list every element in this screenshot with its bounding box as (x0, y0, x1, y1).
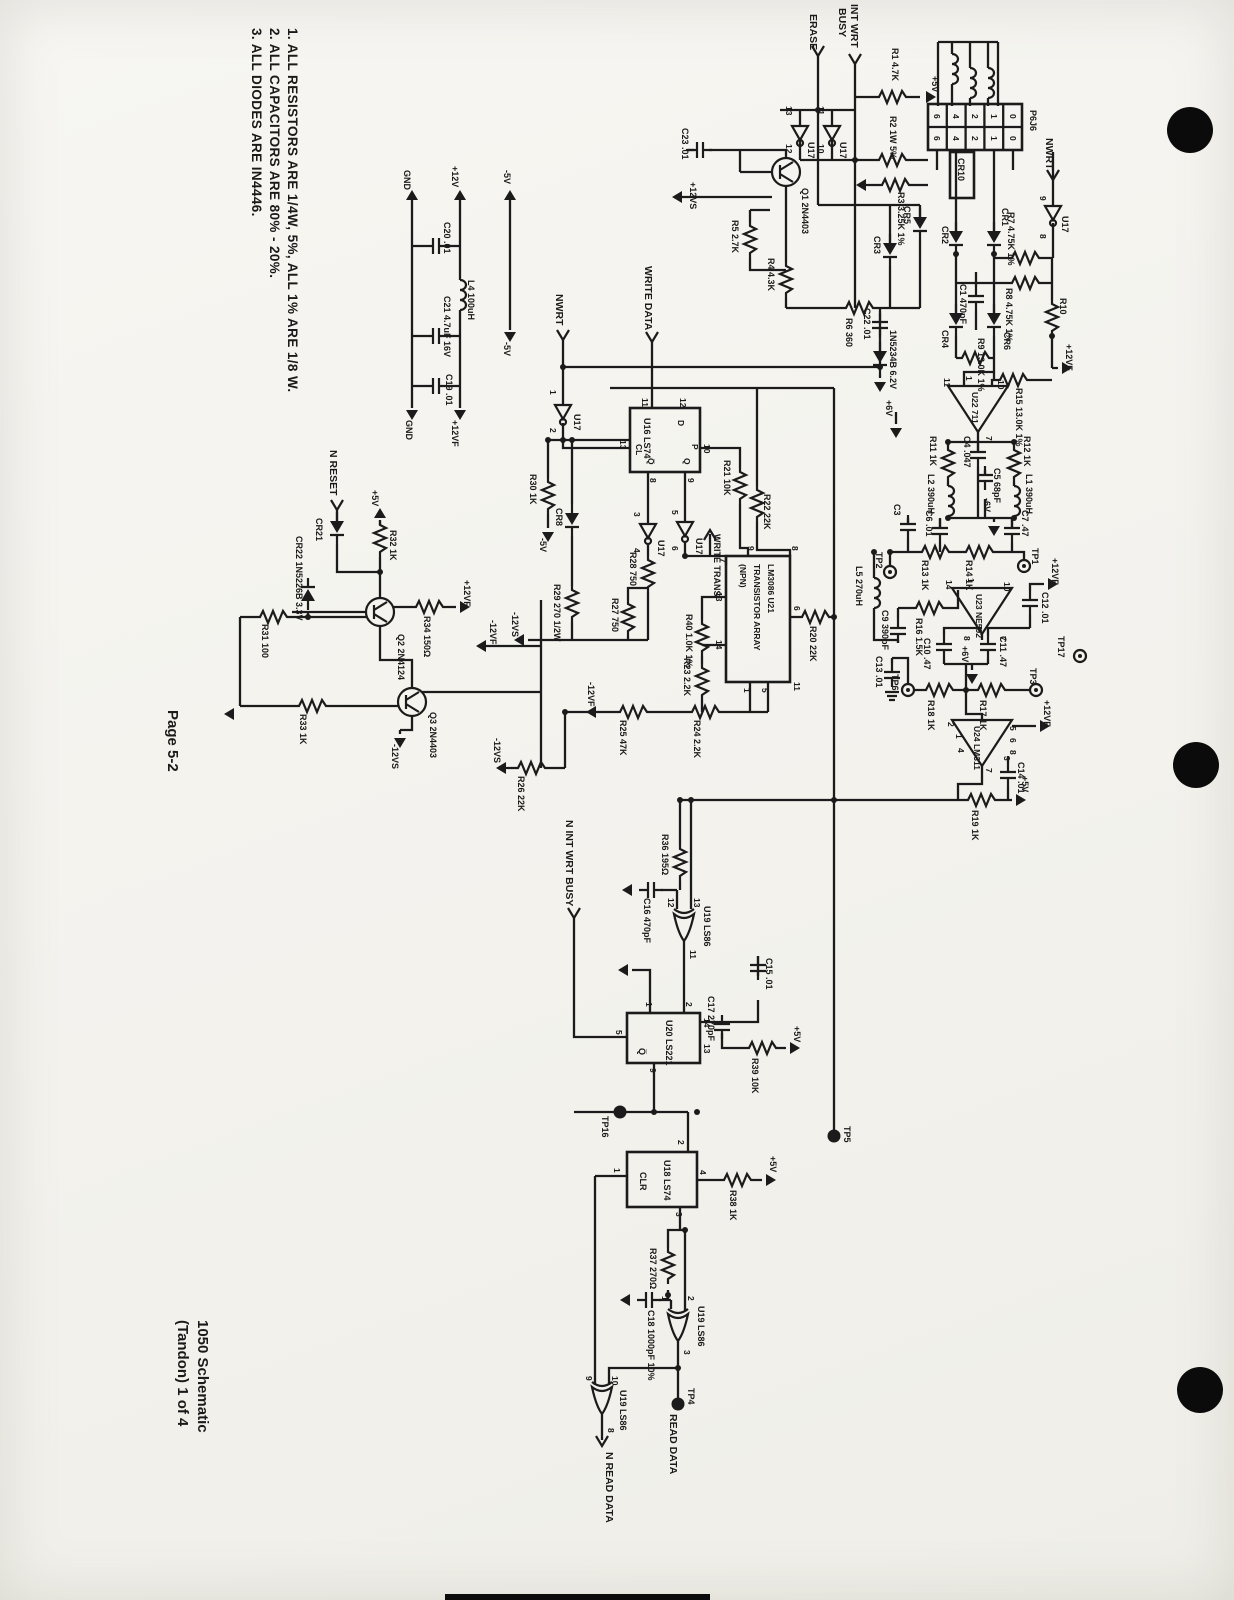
label-c19: C19 .01 (444, 374, 454, 406)
capacitor-c3 (900, 515, 916, 539)
resistor-r39 (745, 1042, 781, 1054)
rail-p5v-r38: +5V (768, 1156, 778, 1172)
svg-text:13: 13 (692, 898, 702, 908)
rail-m5v-r30: -5V (538, 538, 548, 552)
capacitor-c14 (1000, 763, 1016, 787)
rail-m5v-mid: -5V (502, 342, 512, 356)
label-r6: R6 360 (844, 318, 854, 347)
label-u21-line2: TRANSISTOR ARRAY (752, 564, 762, 651)
signal-nwrt-right: NWRT (1043, 138, 1055, 170)
svg-text:6: 6 (670, 546, 680, 551)
gnd-arrow-bottom (406, 410, 418, 420)
scanned-schematic-page: 3. ALL DIODES ARE IN4446. 2. ALL CAPACIT… (0, 0, 1234, 1600)
testpoint-tp3 (1030, 684, 1042, 696)
svg-text:11: 11 (816, 106, 826, 115)
label-tp4: TP4 (686, 1388, 696, 1405)
m6v-arrow (988, 526, 1000, 536)
connector-pin-top-1: 1 (989, 114, 999, 119)
label-c5: C5 68pF (992, 468, 1002, 504)
connector-pin-top-2: 2 (970, 114, 980, 119)
rail-p5v-r32: +5V (370, 490, 380, 506)
label-r13: R13 1K (920, 560, 930, 591)
resistor-r36 (674, 845, 686, 881)
rail-m12vf-left: -12VF (488, 620, 498, 645)
svg-text:2: 2 (946, 722, 956, 727)
label-r29: R29 270 1/2W (552, 584, 562, 642)
label-c9: C9 390pF (880, 610, 890, 651)
n-int-wrt-busy-arrow (568, 908, 580, 918)
p12vf-arrow-bottom (454, 410, 466, 420)
signal-busy: BUSY (836, 8, 848, 37)
label-u19-x1: U19 LS86 (702, 906, 712, 947)
wires-power-block (412, 200, 510, 408)
svg-text:12: 12 (678, 398, 688, 408)
label-tp17: TP17 (1056, 636, 1066, 658)
label-connector-p6j6: P6J6 (1028, 110, 1038, 131)
resistor-r17 (974, 684, 1010, 696)
gnd-arrow-top (406, 190, 418, 200)
label-r30: R30 1K (528, 474, 538, 505)
note-3: 3. ALL DIODES ARE IN4446. (249, 28, 264, 217)
connector-pin-top-0: 0 (1008, 114, 1018, 119)
svg-text:2: 2 (686, 1296, 696, 1301)
testpoint-tp6 (902, 684, 914, 696)
label-l1: L1 390uH (1024, 474, 1034, 514)
diode-cr21 (330, 512, 344, 544)
rail-p5v-r1: +5V (930, 76, 940, 92)
head-coil-2 (970, 68, 976, 98)
resistor-r5 (744, 222, 756, 258)
label-r25: R25 47K (618, 720, 628, 756)
resistor-r12 (1008, 446, 1020, 482)
rail-m12vs-r26: -12VS (492, 738, 502, 763)
p5v-arrow-r38 (766, 1174, 776, 1186)
label-r4: R4 4.3K (766, 258, 776, 292)
rail-m12vs-write: -12VS (510, 612, 520, 637)
write-data-arrow (646, 332, 658, 342)
label-u23: U23 NE592 (974, 594, 984, 638)
rail-p12vf-c12: +12VF (1050, 558, 1060, 585)
svg-text:10: 10 (996, 380, 1006, 390)
svg-text:3: 3 (682, 1350, 692, 1355)
inverter-u17e (640, 524, 656, 544)
rail-p5v-r39: +5V (792, 1026, 802, 1042)
rail-gnd-top: GND (402, 170, 412, 191)
xor-u19-1 (674, 909, 694, 941)
gnd-arrow-loop (224, 708, 234, 720)
label-c10: C10 .47 (922, 638, 932, 670)
svg-text:11: 11 (688, 950, 698, 959)
label-c14: C14 .01 (1016, 762, 1026, 794)
svg-text:2: 2 (676, 1140, 686, 1145)
testpoint-tp5 (828, 1130, 841, 1143)
label-tp5: TP5 (842, 1126, 852, 1143)
label-u17c: U17 (1060, 216, 1070, 233)
label-c22: C22 .01 (862, 308, 872, 340)
head-coil-1 (952, 54, 958, 84)
label-c15: C15 .01 (764, 958, 774, 990)
resistor-r24 (688, 706, 724, 718)
rail-p12vf-bottom: +12VF (450, 420, 460, 447)
resistor-r26 (514, 762, 550, 774)
svg-text:9: 9 (584, 1376, 594, 1381)
svg-text:5: 5 (614, 1030, 624, 1035)
diode-cr8 (565, 504, 579, 536)
p6v-arrow-592 (966, 674, 978, 684)
p5v-arrow-r1 (926, 91, 936, 103)
testpoint-tp4 (672, 1398, 685, 1411)
label-r1: R1 4.7K (890, 48, 900, 82)
capacitor-c1 (968, 287, 984, 311)
label-cr4: CR4 (940, 330, 950, 348)
svg-text:8: 8 (790, 546, 800, 551)
punch-hole-top (1167, 107, 1213, 153)
ic-box-u18 (627, 1152, 697, 1207)
svg-text:1: 1 (612, 1168, 622, 1173)
connector-pin-bot-2: 2 (970, 136, 980, 141)
int-wrt-busy-arrow (849, 54, 861, 64)
resistor-r31 (256, 611, 292, 623)
resistor-r32 (374, 521, 386, 557)
resistor-r9 (958, 352, 994, 364)
resistor-r21 (734, 468, 746, 504)
label-r32: R32 1K (388, 530, 398, 561)
rail-m5v-top: -5V (502, 170, 512, 184)
svg-text:8: 8 (962, 636, 972, 641)
inductor-l1 (1014, 486, 1020, 516)
label-u17a: U17 (806, 142, 816, 159)
label-r12: R12 1K (1022, 436, 1032, 467)
capacitor-c10 (936, 635, 952, 659)
xor-u19-3 (592, 1382, 612, 1414)
label-u21-line3: (NPN) (738, 564, 748, 588)
label-cr3: CR3 (872, 236, 882, 254)
rail-gnd-bottom: GND (404, 420, 414, 441)
label-zener-6v2: 1N5234B 6.2V (888, 330, 898, 389)
svg-text:8: 8 (606, 1428, 616, 1433)
label-l2: L2 390uH (926, 474, 936, 514)
label-c21: C21 4.7uF 16V (442, 296, 452, 357)
label-tp6: TP6 (890, 674, 900, 691)
note-1: 1. ALL RESISTORS ARE 1/4W, 5%, ALL 1% AR… (285, 28, 300, 393)
capacitor-c18 (637, 1292, 661, 1308)
svg-text:1: 1 (660, 1296, 670, 1301)
label-u17e: U17 (656, 540, 666, 557)
label-u16-qbar: Q̅ (646, 458, 656, 465)
signal-n-int-wrt-busy: N INT WRT BUSY (563, 820, 575, 906)
svg-text:4: 4 (632, 548, 642, 553)
p5v-arrow-r19 (1016, 794, 1026, 806)
nwrt-arrow-left (557, 330, 569, 340)
rail-p12vs-q1: +12VS (688, 182, 698, 209)
capacitor-c16 (639, 882, 663, 898)
label-u16-d: D (676, 420, 686, 426)
resistor-r10 (1046, 300, 1058, 336)
xor-u19-2 (668, 1309, 688, 1341)
svg-text:9: 9 (1038, 196, 1048, 201)
label-r2: R2 1W 5% (888, 116, 898, 159)
label-c20: C20 .01 (442, 222, 452, 254)
label-l4: L4 100uH (466, 280, 476, 320)
diode-cr3 (883, 234, 897, 266)
transistor-q2 (366, 598, 394, 626)
schematic-canvas: 3. ALL DIODES ARE IN4446. 2. ALL CAPACIT… (0, 0, 1234, 1600)
svg-text:6: 6 (1008, 738, 1018, 743)
connector-p6j6-dividers (928, 104, 1022, 150)
resistor-r40 (696, 620, 708, 656)
svg-text:10: 10 (1002, 582, 1012, 592)
resistor-r18 (922, 684, 958, 696)
label-c3: C3 (892, 504, 902, 516)
gnd-arrow-zener (874, 382, 886, 392)
resistor-r37 (662, 1248, 674, 1284)
label-q1: Q1 2N4403 (800, 188, 810, 234)
doc-title-line2: (Tandon) 1 of 4 (174, 1320, 191, 1427)
label-tp16: TP16 (600, 1116, 610, 1138)
connector-pin-bot-0: 0 (1008, 136, 1018, 141)
signal-int-wrt: INT WRT (848, 4, 860, 48)
label-c23: C23 .01 (680, 128, 690, 160)
label-cr22: CR22 1N5226B 3.3V (294, 536, 304, 621)
ic-box-u20 (627, 1013, 700, 1063)
signal-write-data: WRITE DATA (642, 266, 654, 331)
resistor-r13 (918, 546, 954, 558)
svg-text:10: 10 (702, 444, 712, 454)
label-c4: C4 .047 (962, 436, 972, 468)
rail-m12vs-q3: -12VS (390, 744, 400, 769)
svg-text:7: 7 (984, 436, 994, 441)
resistor-r27 (622, 600, 634, 636)
resistor-r19 (964, 794, 1000, 806)
svg-text:11: 11 (640, 398, 650, 407)
label-cr2: CR2 (940, 226, 950, 244)
label-c18: C18 1000pF 10% (646, 1310, 656, 1381)
resistor-r11 (942, 446, 954, 482)
svg-text:7: 7 (998, 636, 1008, 641)
inverter-u17d (555, 405, 571, 425)
rail-p12vf-u24: +12VF (1042, 700, 1052, 727)
resistor-r25 (616, 706, 652, 718)
label-u16-q: Q (682, 458, 692, 465)
signal-write-trans: WRITE TRANS (712, 534, 722, 597)
svg-text:14: 14 (944, 580, 954, 590)
p12vs-arrow-q1 (672, 191, 682, 203)
page-number: Page 5-2 (164, 710, 181, 772)
rail-p12vf-q2: +12VF (462, 580, 472, 607)
svg-text:8: 8 (1038, 234, 1048, 239)
diode-cr5 (913, 208, 927, 240)
signal-erase: ERASE (807, 14, 819, 50)
resistor-r23 (696, 664, 708, 700)
label-c12: C12 .01 (1040, 592, 1050, 624)
label-cr10: CR10 (956, 158, 966, 181)
svg-text:4: 4 (956, 748, 966, 753)
label-cr8: CR8 (554, 508, 564, 526)
svg-text:14: 14 (714, 640, 724, 650)
p5v-arrow-r39 (790, 1042, 800, 1054)
svg-text:4: 4 (698, 1170, 708, 1175)
label-r10: R10 (1058, 298, 1068, 315)
m5v-arrow-mid (504, 332, 516, 342)
testpoint-tp2 (884, 566, 896, 578)
rail-m6v: -6V (982, 498, 992, 512)
capacitor-c7 (1004, 519, 1020, 543)
label-u19-x2: U19 LS86 (696, 1306, 706, 1347)
inductor-l4 (460, 280, 466, 310)
svg-text:10: 10 (816, 144, 826, 154)
resistor-r16 (912, 602, 948, 614)
label-u20: U20 LS221 (664, 1020, 674, 1066)
label-u17d: U17 (572, 414, 582, 431)
signal-read-data: READ DATA (667, 1414, 679, 1475)
svg-text:11: 11 (942, 378, 952, 387)
note-2: 2. ALL CAPACITORS ARE 80% - 20%. (267, 28, 282, 278)
resistor-r28 (642, 556, 654, 592)
svg-text:3: 3 (632, 512, 642, 517)
label-u20-qbar: Q̅ (637, 1048, 647, 1055)
svg-text:11: 11 (792, 682, 802, 691)
rail-p6v-592: +6V (960, 646, 970, 662)
label-u21-line1: LM3086 U21 (766, 564, 776, 613)
signal-n-read-data: N READ DATA (603, 1452, 615, 1523)
label-r19: R19 1K (970, 810, 980, 841)
label-cr5: CR5 (902, 206, 912, 224)
label-u24: U24 LM311 (972, 726, 982, 770)
label-r20: R20 22K (808, 626, 818, 662)
wires-top-right (563, 56, 928, 378)
svg-text:7: 7 (984, 768, 994, 773)
ground-symbol-c13 (885, 692, 899, 700)
label-r22: R22 22K (762, 494, 772, 530)
rail-p12vf-r10: +12VF (1064, 344, 1074, 371)
resistor-r1 (875, 91, 911, 103)
rail-m12vf-r25: -12VF (586, 682, 596, 707)
label-u19-x3: U19 LS86 (618, 1390, 628, 1431)
label-r36: R36 195Ω (660, 834, 670, 875)
svg-text:1: 1 (742, 688, 752, 693)
punch-hole-middle (1173, 742, 1219, 788)
m12vf-arrow-left (476, 640, 486, 652)
resistor-r14 (962, 546, 998, 558)
diode-cr2 (949, 222, 963, 254)
label-r5: R5 2.7K (730, 220, 740, 254)
resistor-r33 (295, 700, 331, 712)
p5v-arrow-r32 (374, 508, 386, 518)
label-tp1: TP1 (1030, 548, 1040, 565)
label-u16-p: P (690, 444, 700, 450)
testpoint-tp17 (1074, 650, 1086, 662)
label-c13: C13 .01 (874, 656, 884, 688)
inductor-l2 (948, 486, 954, 516)
label-r14: R14 1K (964, 560, 974, 591)
svg-text:12: 12 (784, 144, 794, 154)
wires-write-section (422, 340, 790, 768)
resistor-r34 (412, 601, 448, 613)
svg-text:13: 13 (784, 106, 794, 116)
label-cr6: CR6 (1002, 332, 1012, 350)
svg-text:7: 7 (718, 558, 728, 563)
svg-text:3: 3 (674, 1212, 684, 1217)
scan-edge-artifact (445, 1594, 710, 1600)
m12vf-arrow-r25 (586, 706, 596, 718)
label-r34: R34 150Ω (422, 616, 432, 657)
connector-pin-bot-4: 4 (951, 136, 961, 141)
connector-pin-bot-1: 1 (989, 136, 999, 141)
resistor-r22 (751, 486, 763, 522)
svg-text:10: 10 (610, 1376, 620, 1386)
label-cr21: CR21 (314, 518, 324, 541)
svg-text:9: 9 (746, 546, 756, 551)
connector-pin-top-6: 6 (932, 114, 942, 119)
label-r9: R9 13.0K 1% (976, 338, 986, 392)
svg-text:1: 1 (966, 578, 976, 583)
gnd-arrow-c16 (622, 884, 632, 896)
svg-text:8: 8 (648, 478, 658, 483)
label-u22: U22 711 (970, 392, 980, 424)
inverter-u17f (677, 522, 693, 542)
label-q2: Q2 2N4124 (396, 634, 406, 680)
resistor-r30 (542, 478, 554, 514)
gnd-arrow-u20 (618, 964, 628, 976)
svg-text:2: 2 (548, 428, 558, 433)
svg-text:9: 9 (686, 478, 696, 483)
m5v-arrow-top (504, 190, 516, 200)
punch-hole-bottom (1177, 1367, 1223, 1413)
inductor-l5 (874, 578, 880, 608)
label-r37: R37 270Ω (648, 1248, 658, 1289)
transistor-q1 (772, 158, 800, 186)
svg-text:5: 5 (1008, 726, 1018, 731)
svg-text:12: 12 (666, 898, 676, 908)
svg-text:1: 1 (548, 390, 558, 395)
svg-text:1: 1 (644, 1002, 654, 1007)
svg-text:13: 13 (714, 592, 724, 602)
label-r31: R31 100 (260, 624, 270, 658)
n-reset-arrow (331, 500, 343, 510)
label-c16: C16 470pF (642, 898, 652, 944)
label-u17b: U17 (838, 142, 848, 159)
svg-text:6: 6 (792, 606, 802, 611)
junction-dots (305, 107, 1055, 1371)
label-u18-clr: CLR (638, 1172, 648, 1191)
capacitor-c12 (1022, 591, 1038, 615)
connector-pin-bot-6: 6 (932, 136, 942, 141)
gnd-arrow-c18 (620, 1294, 630, 1306)
label-r28: R28 750 (628, 552, 638, 586)
svg-text:1: 1 (954, 734, 964, 739)
resistor-r20 (798, 611, 834, 623)
doc-title-line1: 1050 Schematic (194, 1320, 211, 1433)
label-r33: R33 1K (298, 714, 308, 745)
rail-p6v-top: +6V (884, 400, 894, 416)
label-r24: R24 2.2K (692, 720, 702, 759)
label-r26: R26 22K (516, 776, 526, 812)
label-l5: L5 270uH (854, 566, 864, 606)
signal-n-reset: N RESET (327, 450, 339, 496)
testpoint-tp16 (614, 1106, 627, 1119)
label-r11: R11 1K (928, 436, 938, 467)
svg-text:3: 3 (1002, 756, 1012, 761)
capacitor-c5 (977, 466, 993, 490)
p6v-arrow-top (890, 428, 902, 438)
svg-text:5: 5 (670, 510, 680, 515)
label-r18: R18 1K (926, 700, 936, 731)
label-r27: R27 750 (610, 598, 620, 632)
head-coil-3 (988, 68, 994, 98)
label-u17f: U17 (694, 538, 704, 555)
r3-arrow (856, 179, 866, 191)
p12v-arrow-top (454, 190, 466, 200)
